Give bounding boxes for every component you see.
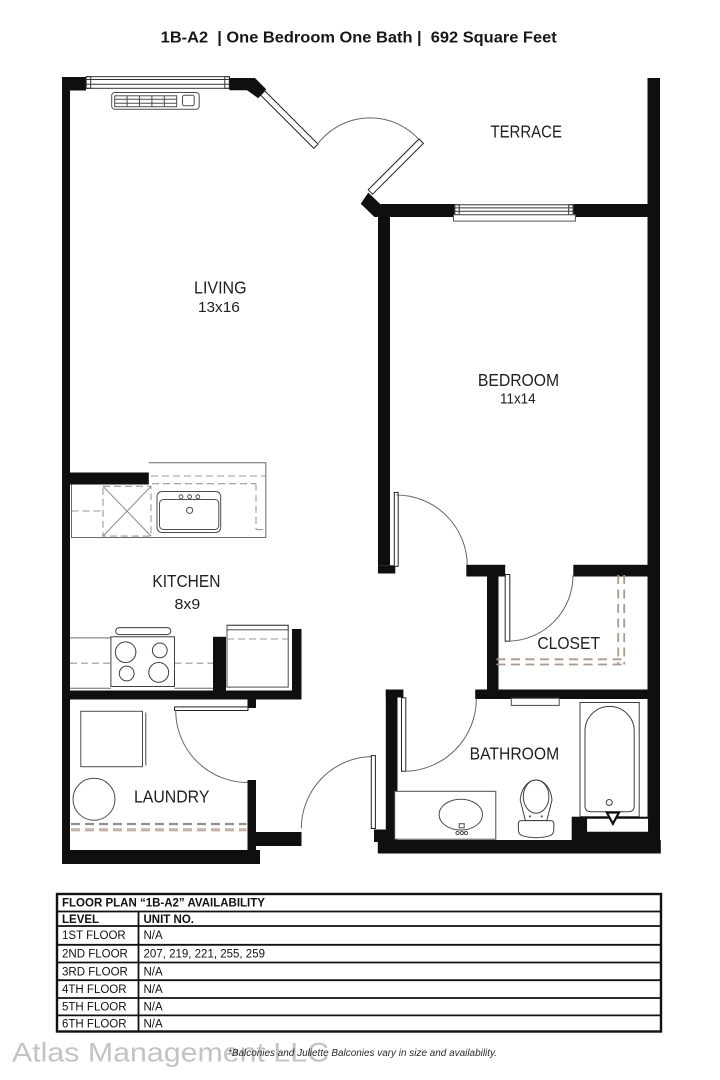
- svg-text:TERRACE: TERRACE: [490, 122, 562, 142]
- svg-text:8x9: 8x9: [175, 597, 201, 613]
- svg-text:13x16: 13x16: [198, 300, 240, 316]
- svg-text:UNIT NO.: UNIT NO.: [144, 914, 194, 926]
- svg-text:N/A: N/A: [144, 966, 164, 978]
- svg-text:BEDROOM: BEDROOM: [478, 370, 559, 390]
- svg-text:1B-A2 | One Bedroom One Bath: 1B-A2 | One Bedroom One Bath | 692 Squar…: [161, 30, 558, 47]
- svg-text:KITCHEN: KITCHEN: [152, 571, 220, 591]
- svg-text:FLOOR PLAN “1B-A2” AVAILABILIT: FLOOR PLAN “1B-A2” AVAILABILITY: [62, 897, 265, 909]
- svg-text:1ST FLOOR: 1ST FLOOR: [62, 930, 126, 942]
- svg-text:5TH FLOOR: 5TH FLOOR: [62, 1002, 127, 1014]
- svg-text:11x14: 11x14: [500, 392, 536, 408]
- svg-text:N/A: N/A: [144, 1002, 164, 1014]
- svg-text:LAUNDRY: LAUNDRY: [134, 787, 210, 807]
- svg-text:LEVEL: LEVEL: [62, 914, 99, 926]
- svg-text:N/A: N/A: [144, 984, 164, 996]
- svg-text:N/A: N/A: [144, 930, 164, 942]
- svg-text:207, 219, 221, 255, 259: 207, 219, 221, 255, 259: [144, 949, 266, 961]
- svg-text:CLOSET: CLOSET: [537, 633, 600, 653]
- svg-text:*Balconies and Juliette Balcon: *Balconies and Juliette Balconies vary i…: [228, 1048, 497, 1059]
- svg-text:6TH FLOOR: 6TH FLOOR: [62, 1019, 127, 1031]
- svg-text:4TH FLOOR: 4TH FLOOR: [62, 984, 127, 996]
- svg-text:BATHROOM: BATHROOM: [470, 744, 560, 764]
- svg-text:2ND FLOOR: 2ND FLOOR: [62, 949, 128, 961]
- svg-text:N/A: N/A: [144, 1019, 164, 1031]
- svg-text:LIVING: LIVING: [194, 277, 247, 297]
- svg-text:3RD FLOOR: 3RD FLOOR: [62, 966, 128, 978]
